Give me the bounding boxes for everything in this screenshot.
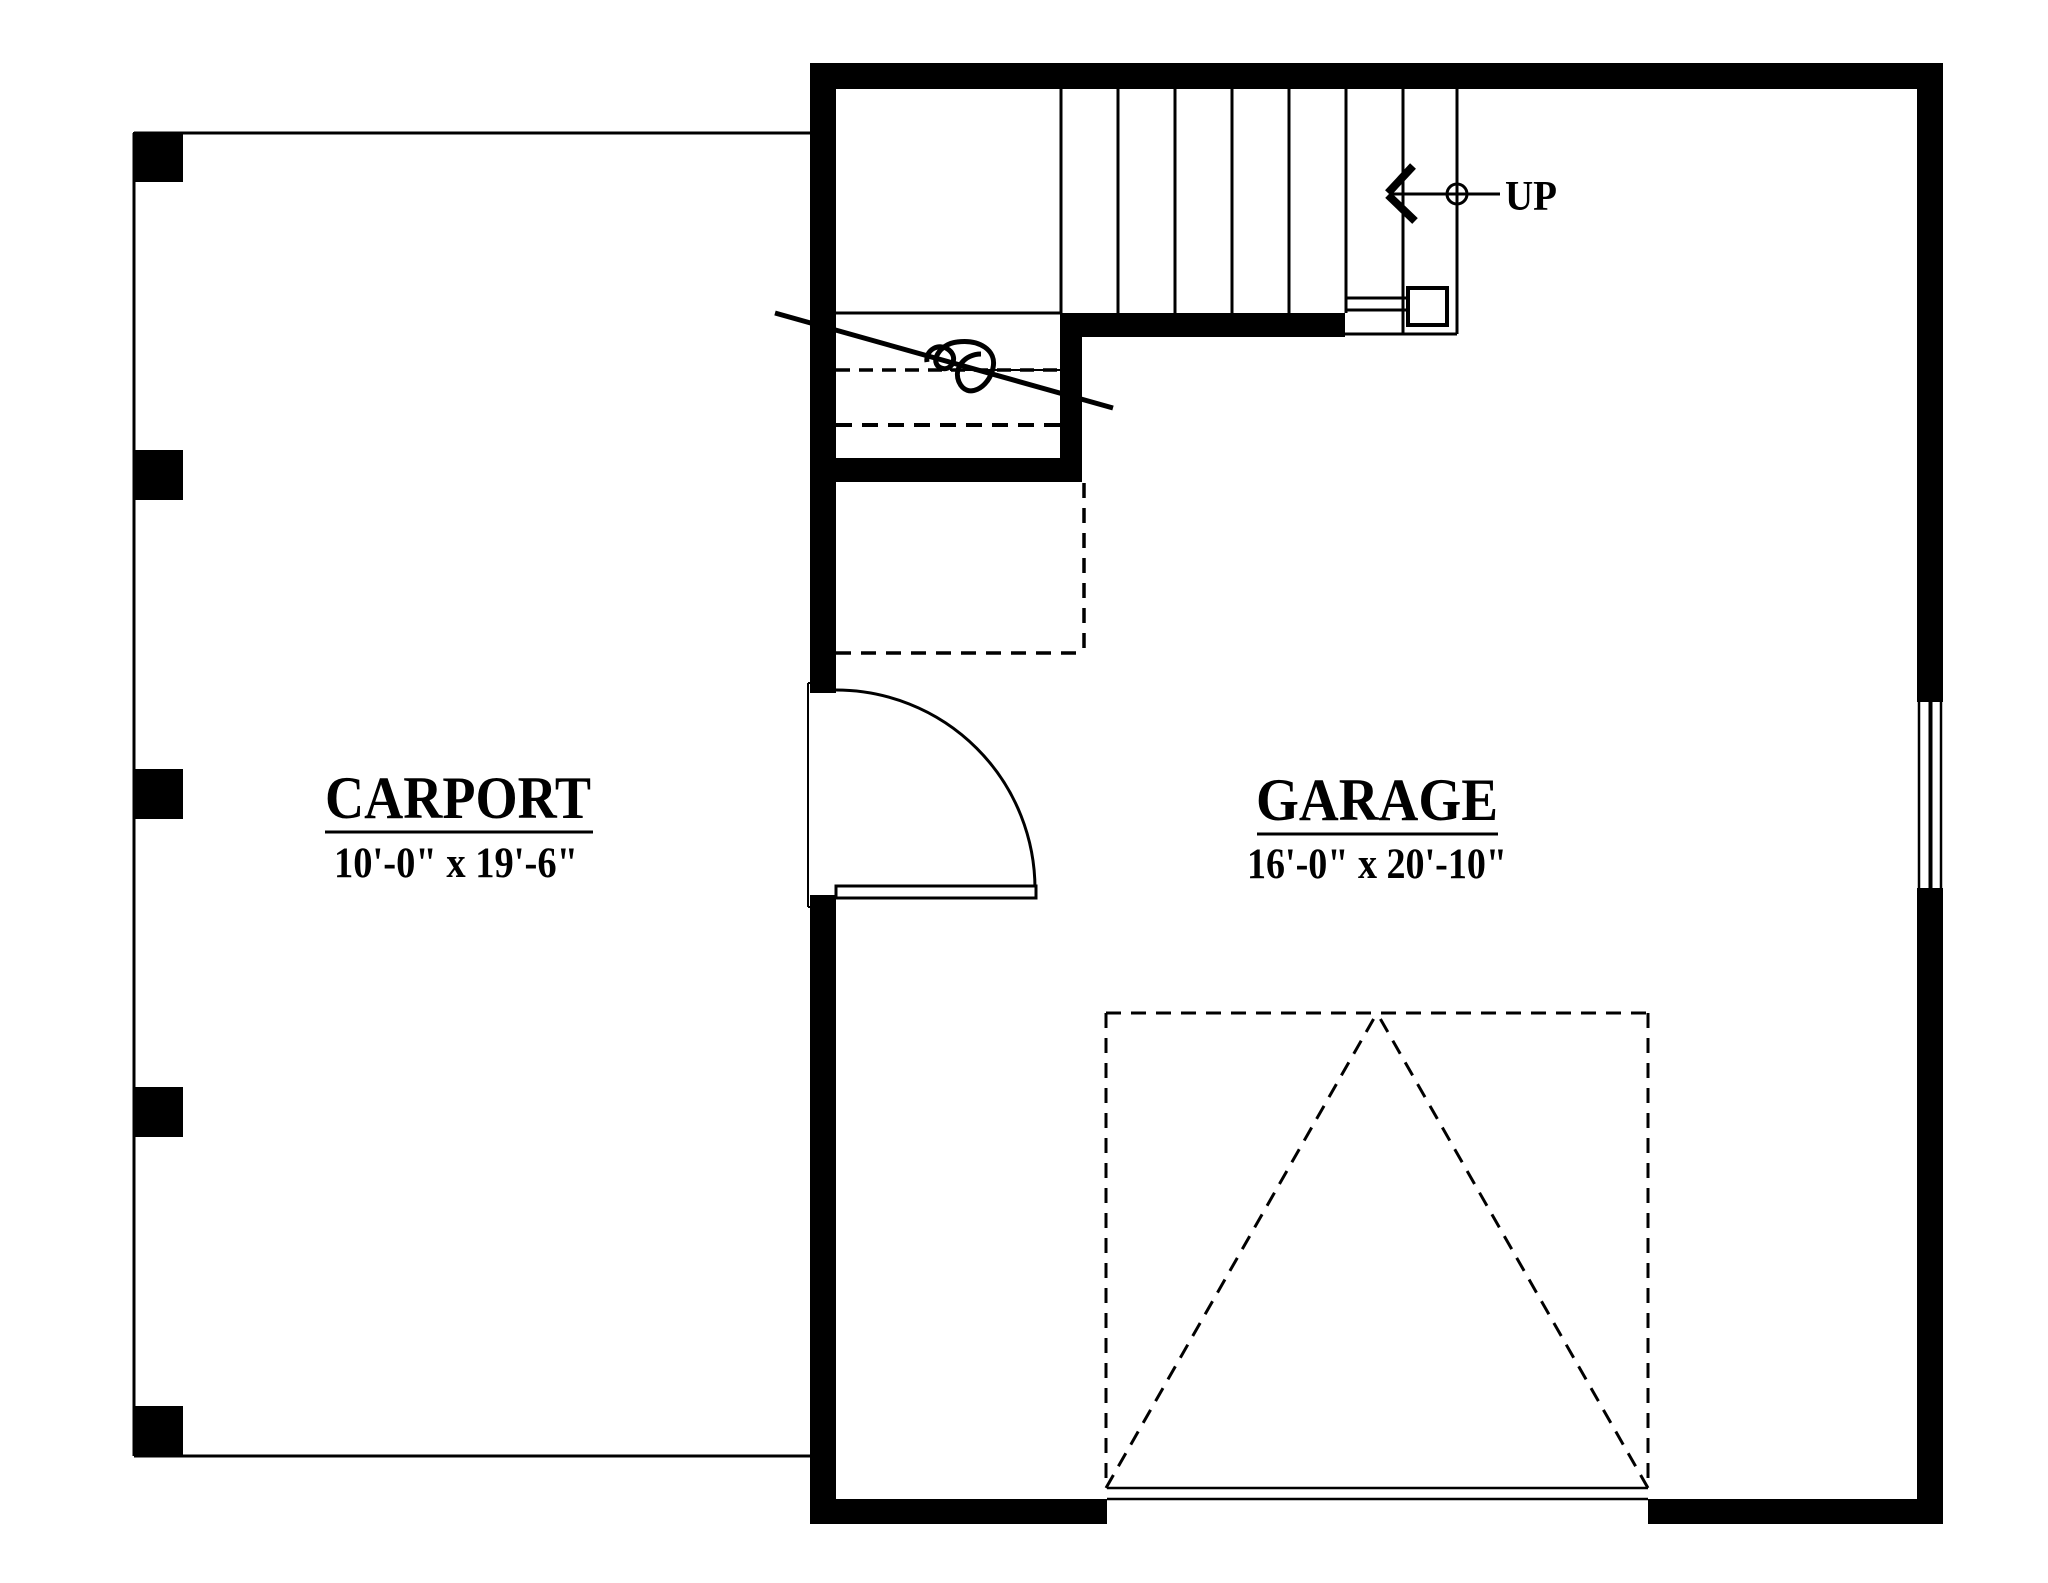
- up-label: UP: [1505, 174, 1557, 220]
- door-leaf: [836, 886, 1036, 898]
- under-stair-storage-outline: [836, 483, 1084, 653]
- post-icon: [133, 769, 183, 819]
- break-line-s-curl-icon: [927, 342, 994, 391]
- garage-door-swing-right: [1377, 1013, 1648, 1488]
- wall-bottom-right: [1648, 1499, 1943, 1524]
- wall-right-upper: [1917, 63, 1943, 700]
- garage-door-swing-left: [1106, 1013, 1377, 1488]
- carport-room-label: CARPORT: [325, 765, 591, 831]
- stair-room-bottom-wall: [836, 458, 1082, 482]
- overhead-stair-dashed-lines: [836, 370, 1060, 425]
- wall-right-lower: [1917, 890, 1943, 1524]
- newel-post: [1408, 288, 1447, 325]
- post-icon: [133, 1087, 183, 1137]
- entry-door: [808, 683, 1036, 907]
- window: [1917, 700, 1943, 890]
- post-icon: [133, 450, 183, 500]
- staircase: UP: [775, 89, 1557, 653]
- floor-plan-drawing: CARPORT 10'-0" x 19'-6": [0, 0, 2048, 1583]
- wall-left-upper: [810, 63, 836, 693]
- garage: GARAGE 16'-0" x 20'-10": [1106, 767, 1648, 1499]
- post-icon: [133, 1406, 183, 1456]
- post-icon: [133, 132, 183, 182]
- wall-bottom-left: [810, 1499, 1107, 1524]
- up-arrowhead-icon: [1388, 166, 1413, 193]
- wall-left-lower: [810, 895, 836, 1524]
- carport-dims-label: 10'-0" x 19'-6": [334, 840, 578, 887]
- garage-room-label: GARAGE: [1256, 767, 1498, 833]
- up-arrow: UP: [1388, 166, 1557, 221]
- floor-plan-page: CARPORT 10'-0" x 19'-6": [0, 0, 2048, 1583]
- carport: CARPORT 10'-0" x 19'-6": [133, 132, 810, 1456]
- under-stair-wall: [1060, 313, 1345, 337]
- garage-dims-label: 16'-0" x 20'-10": [1247, 841, 1507, 888]
- wall-top: [810, 63, 1943, 89]
- carport-posts: [133, 132, 183, 1456]
- garage-door-overhead-outline: [1106, 1013, 1648, 1488]
- door-swing-arc: [836, 690, 1035, 889]
